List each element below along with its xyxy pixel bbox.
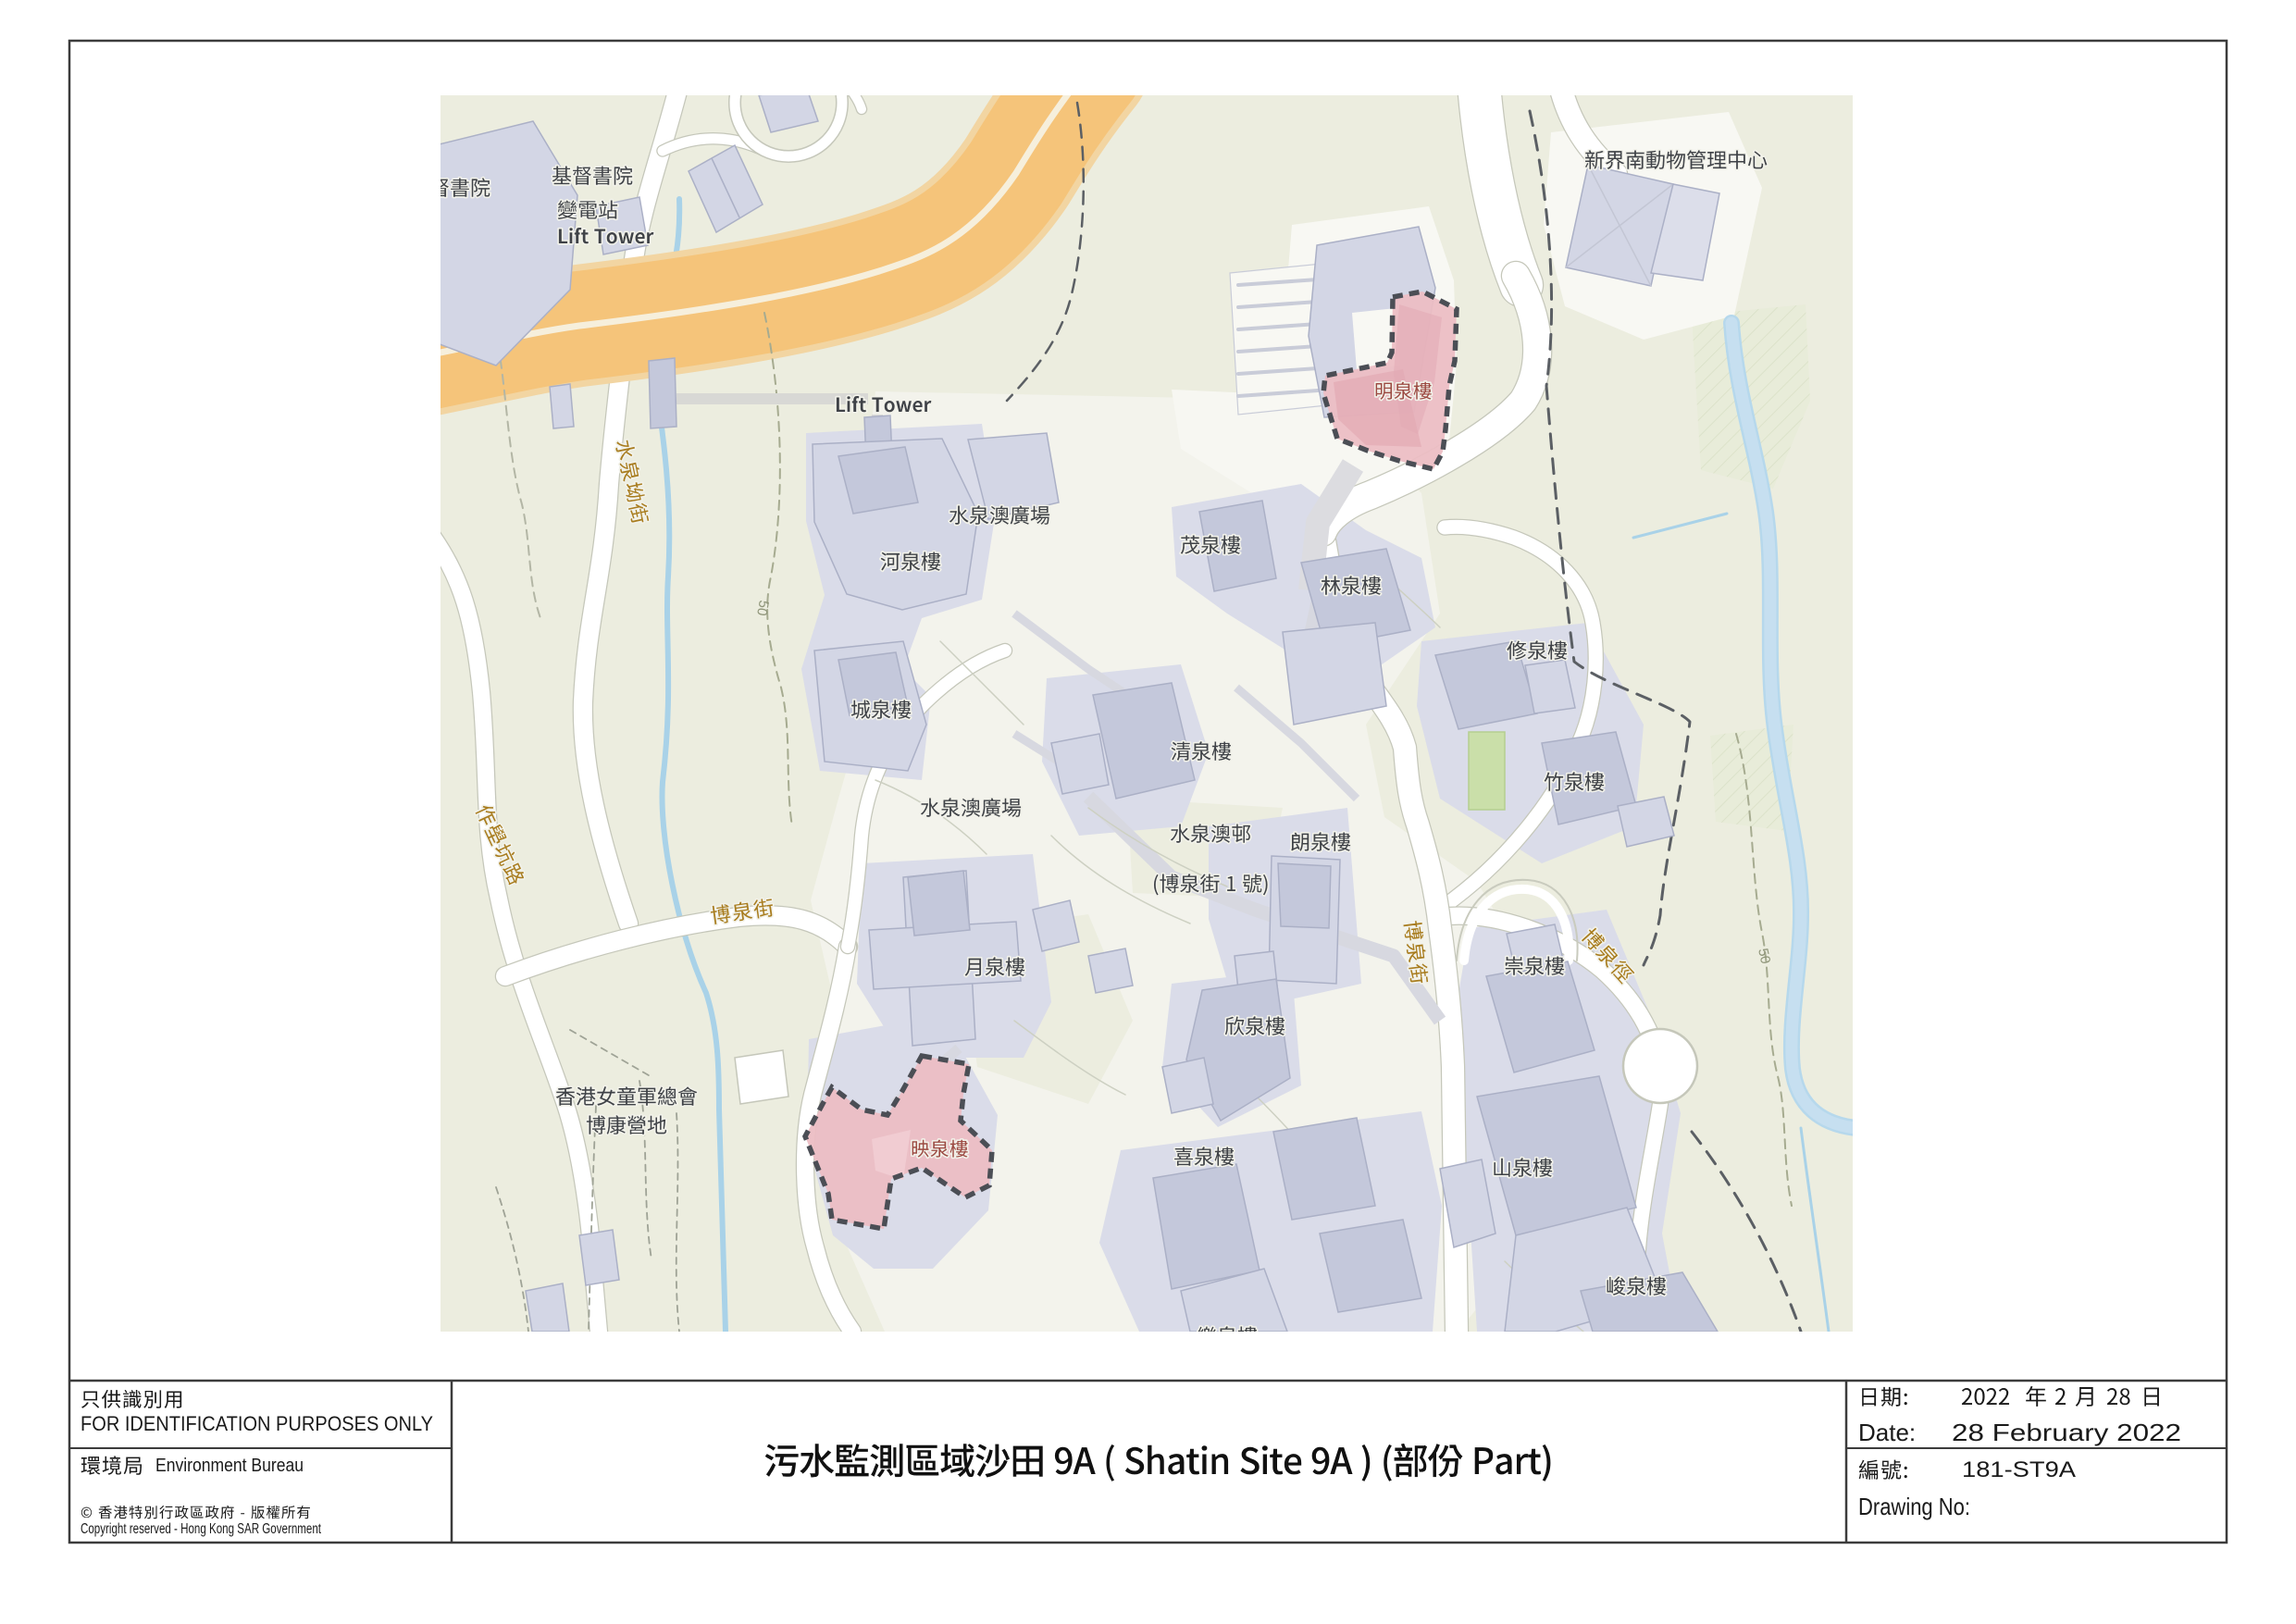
svg-text:28 February 2022: 28 February 2022 [1952, 1419, 2181, 1446]
svg-text:50: 50 [753, 599, 772, 616]
svg-text:Drawing No:: Drawing No: [1858, 1493, 1970, 1520]
svg-text:Environment Bureau: Environment Bureau [155, 1455, 304, 1476]
svg-text:Date:: Date: [1858, 1419, 1916, 1446]
svg-text:181-ST9A: 181-ST9A [1962, 1457, 2077, 1482]
svg-text:50: 50 [1755, 947, 1773, 965]
svg-text:FOR IDENTIFICATION PURPOSES ON: FOR IDENTIFICATION PURPOSES ONLY [81, 1412, 433, 1435]
svg-text:Copyright reserved - Hong Kong: Copyright reserved - Hong Kong SAR Gover… [81, 1521, 322, 1537]
